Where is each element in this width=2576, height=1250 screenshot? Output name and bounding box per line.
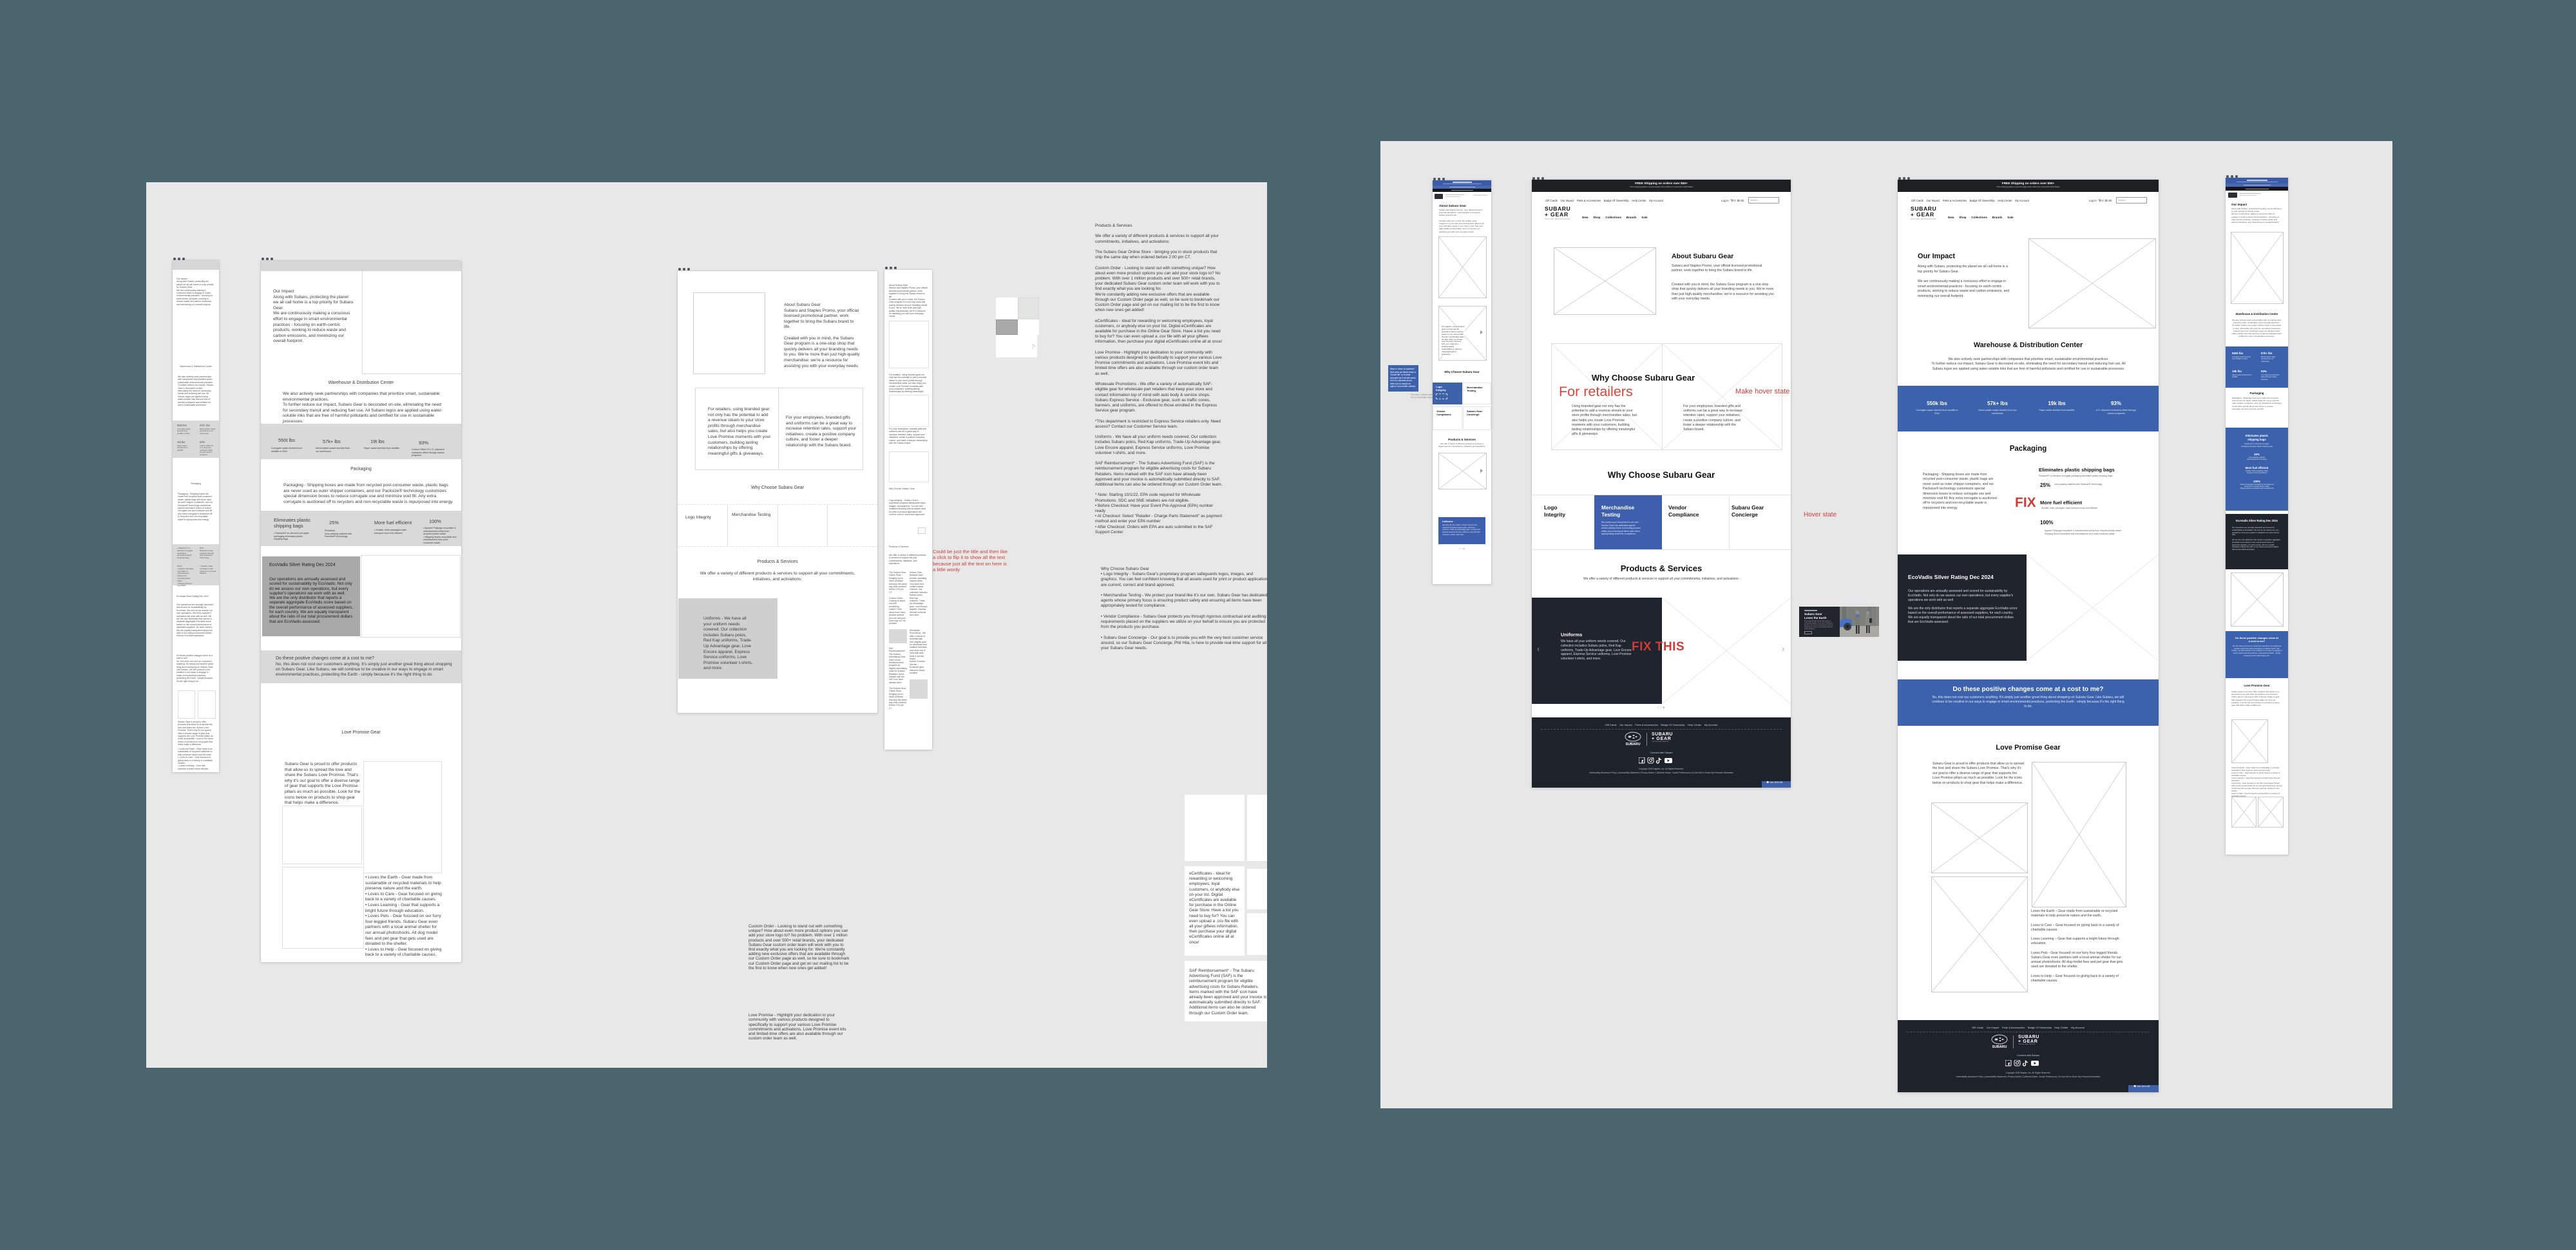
svg-text:SUBARU: SUBARU bbox=[1992, 1045, 2007, 1048]
svg-text:SUBARU: SUBARU bbox=[1625, 743, 1640, 746]
